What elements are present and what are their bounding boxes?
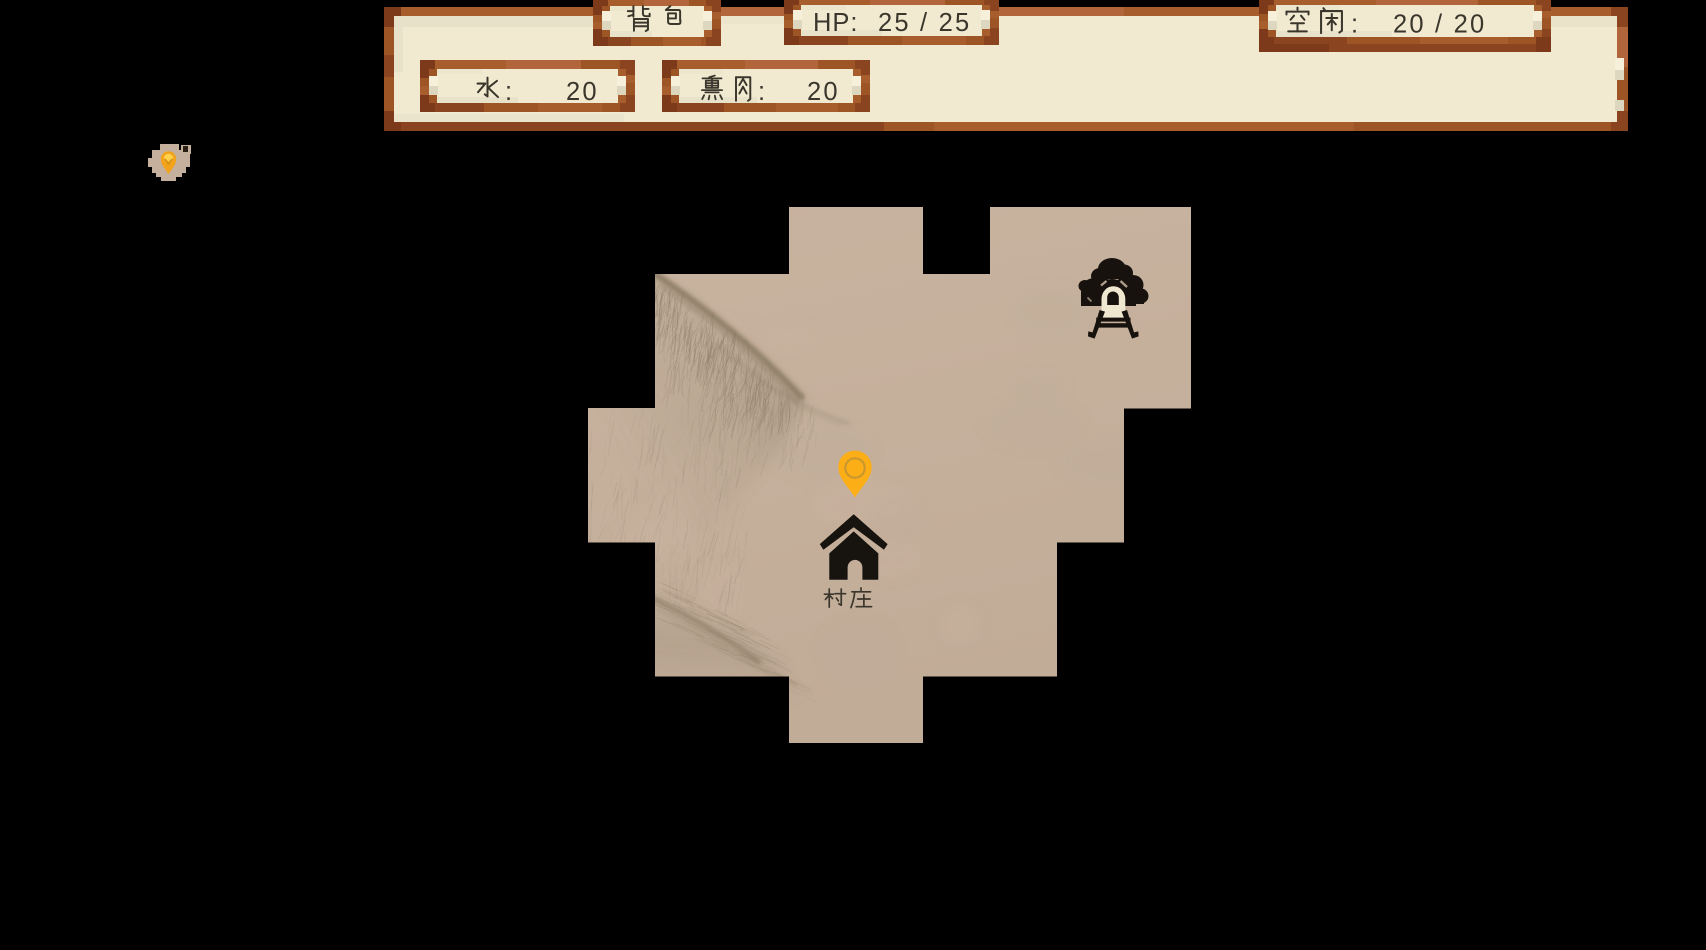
svg-text:20 / 20: 20 / 20 bbox=[1393, 11, 1486, 39]
svg-text:25 / 25: 25 / 25 bbox=[878, 9, 971, 37]
svg-text:20: 20 bbox=[807, 78, 840, 106]
svg-text::: : bbox=[505, 78, 512, 106]
svg-text::: : bbox=[758, 78, 765, 106]
svg-text:20: 20 bbox=[566, 78, 599, 106]
svg-text:HP:: HP: bbox=[813, 9, 859, 37]
svg-text::: : bbox=[1351, 11, 1358, 39]
